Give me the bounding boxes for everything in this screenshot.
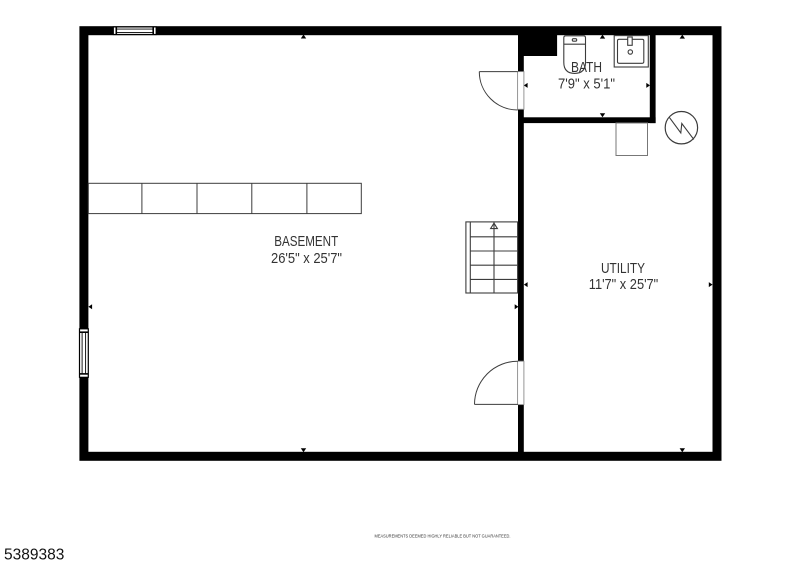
svg-text:5389383: 5389383 — [4, 547, 64, 564]
svg-text:BATH: BATH — [571, 59, 602, 76]
svg-text:7'9" x 5'1": 7'9" x 5'1" — [558, 76, 615, 93]
svg-text:11'7" x 25'7": 11'7" x 25'7" — [589, 276, 659, 293]
svg-text:BASEMENT: BASEMENT — [274, 233, 338, 250]
svg-text:26'5" x 25'7": 26'5" x 25'7" — [271, 250, 342, 267]
svg-text:UTILITY: UTILITY — [601, 260, 645, 277]
svg-text:MEASUREMENTS DEEMED HIGHLY REL: MEASUREMENTS DEEMED HIGHLY RELIABLE BUT … — [375, 534, 511, 540]
